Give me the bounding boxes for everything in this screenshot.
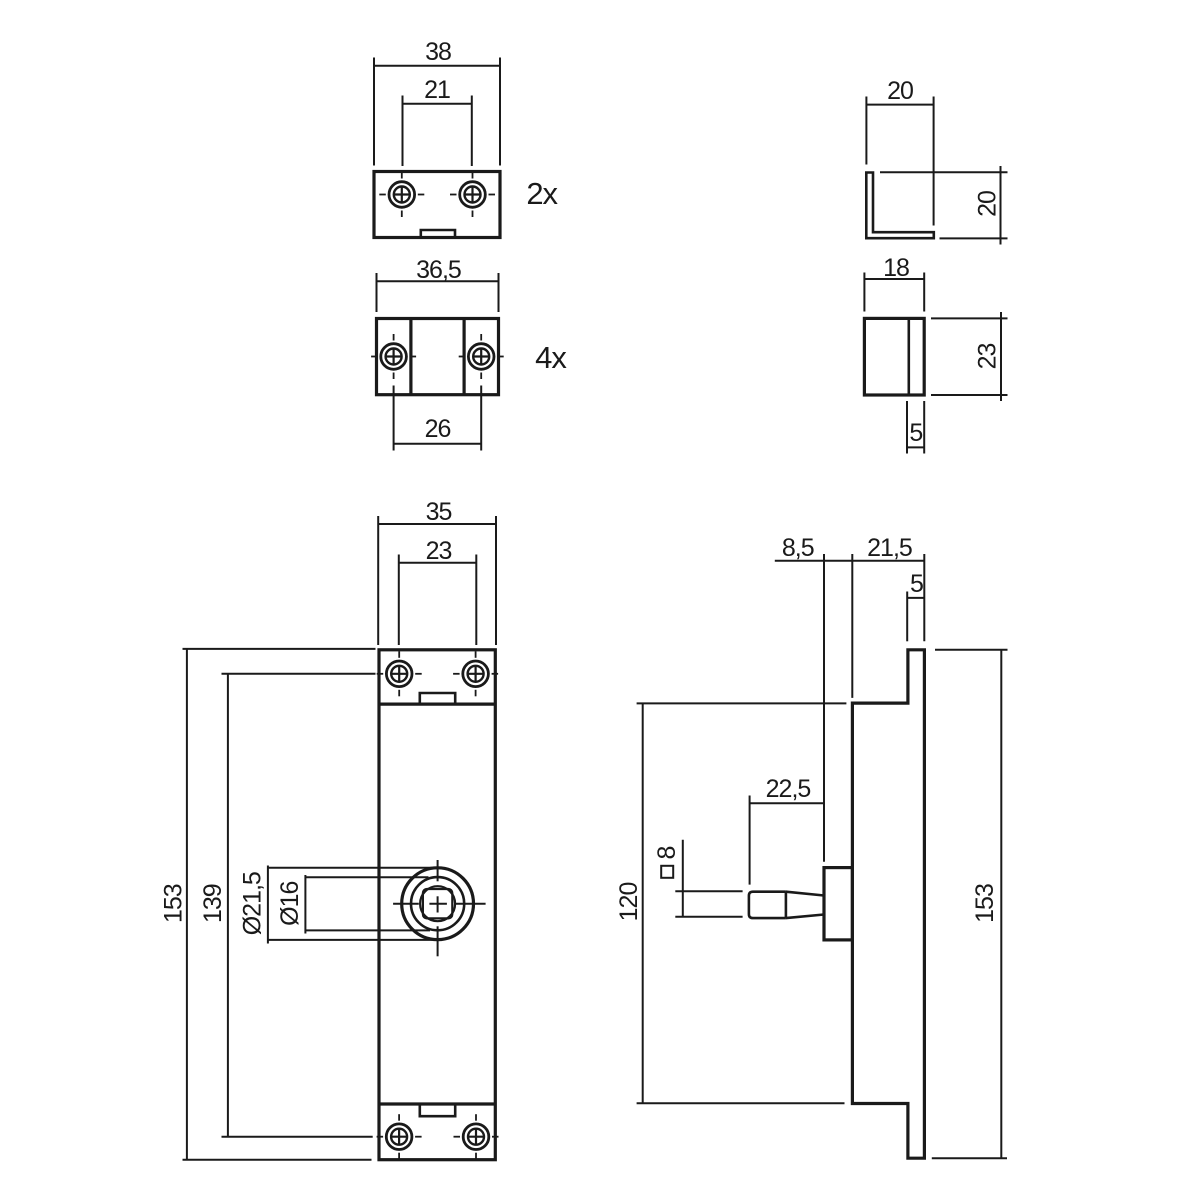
svg-text:2x: 2x <box>526 176 558 211</box>
svg-text:21,5: 21,5 <box>867 534 912 562</box>
svg-text:5: 5 <box>910 570 923 598</box>
svg-text:21: 21 <box>424 76 450 104</box>
svg-text:38: 38 <box>425 38 451 66</box>
svg-text:8: 8 <box>653 846 681 859</box>
svg-text:8,5: 8,5 <box>782 534 814 562</box>
svg-text:Ø16: Ø16 <box>276 881 304 925</box>
svg-text:153: 153 <box>160 884 188 923</box>
svg-text:4x: 4x <box>535 340 567 375</box>
svg-text:20: 20 <box>974 191 1002 217</box>
svg-text:Ø21,5: Ø21,5 <box>239 872 267 935</box>
svg-text:120: 120 <box>615 883 643 922</box>
svg-text:139: 139 <box>199 884 227 923</box>
svg-text:35: 35 <box>426 498 452 526</box>
svg-text:5: 5 <box>909 419 922 447</box>
svg-text:26: 26 <box>425 415 451 443</box>
svg-text:22,5: 22,5 <box>766 775 811 803</box>
svg-text:36,5: 36,5 <box>416 256 461 284</box>
svg-text:18: 18 <box>883 254 909 282</box>
svg-text:20: 20 <box>887 77 913 105</box>
svg-text:23: 23 <box>426 537 452 565</box>
svg-text:153: 153 <box>971 884 999 923</box>
svg-text:23: 23 <box>974 344 1002 370</box>
